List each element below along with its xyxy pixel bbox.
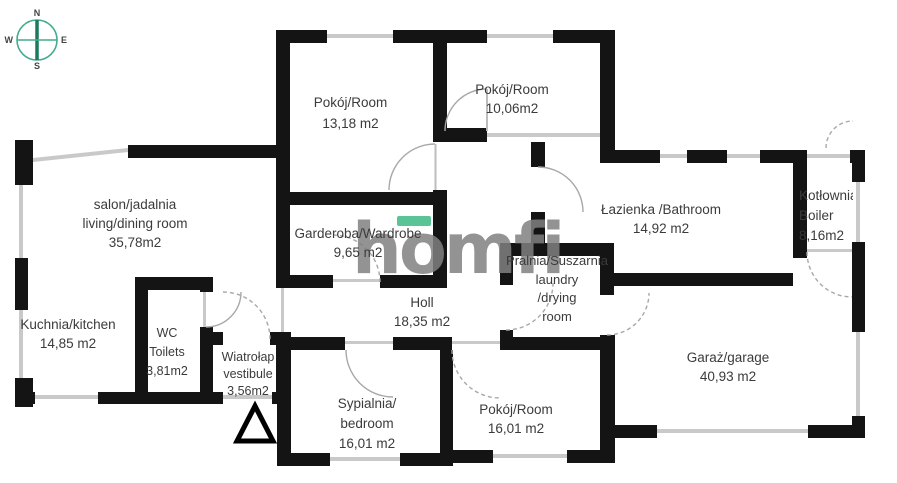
room-name: Łazienka /Bathroom (577, 200, 745, 219)
room-label-bedroom: Sypialnia/ bedroom 16,01 m2 (303, 394, 431, 454)
room-label-room-16: Pokój/Room 16,01 m2 (448, 400, 584, 438)
room-name: salon/jadalnia (55, 195, 215, 214)
room-label-room-10: Pokój/Room 10,06m2 (437, 80, 587, 118)
room-label-wardrobe: Garderoba/Wardrobe 9,65 m2 (283, 224, 433, 262)
door-arc-vestibule (223, 292, 270, 339)
room-name: Sypialnia/ (303, 394, 431, 414)
garage-door-line (657, 429, 808, 433)
room-area: 40,93 m2 (648, 367, 808, 386)
floor-plan: N E S W homfi salon/jadalnia living/dini… (0, 0, 897, 483)
window-salon-diagonal (33, 148, 128, 162)
door-arc-boiler (807, 252, 852, 297)
room-name: Pokój/Room (283, 92, 418, 113)
room-name-en: living/dining room (55, 214, 215, 233)
door-arc-wc (206, 292, 241, 327)
room-label-room-13: Pokój/Room 13,18 m2 (283, 92, 418, 134)
door-arc-pokoj16 (452, 350, 500, 398)
room-area: 13,18 m2 (283, 113, 418, 134)
room-label-garage: Garaż/garage 40,93 m2 (648, 348, 808, 386)
room-name-en: vestibule (202, 366, 294, 383)
room-name-en: bedroom (303, 414, 431, 434)
room-area: 8,16m2 (799, 226, 853, 246)
room-label-vestibule: Wiatrołap vestibule 3,56m2 (202, 349, 294, 400)
room-label-living-dining: salon/jadalnia living/dining room 35,78m… (55, 195, 215, 252)
room-area: 14,92 m2 (577, 219, 745, 238)
room-name: Pokój/Room (448, 400, 584, 419)
room-area: 3,81m2 (135, 362, 199, 381)
room-label-wc: WC Toilets 3,81m2 (135, 324, 199, 381)
entrance-marker (237, 406, 273, 441)
door-arc-sypialnia (346, 350, 393, 397)
room-label-boiler: Kotłownia Boiler 8,16m2 (799, 186, 853, 246)
compass-w-label: W (5, 35, 14, 45)
room-area: 3,56m2 (202, 383, 294, 400)
room-name: Wiatrołap (202, 349, 294, 366)
room-label-bathroom: Łazienka /Bathroom 14,92 m2 (577, 200, 745, 238)
room-name: Garaż/garage (648, 348, 808, 367)
room-label-kitchen: Kuchnia/kitchen 14,85 m2 (8, 315, 128, 353)
room-name: Holl (368, 293, 476, 312)
room-area: 10,06m2 (437, 99, 587, 118)
room-name: WC (135, 324, 199, 343)
room-name: Pralnia/Suszarnia (500, 252, 614, 271)
room-area: 18,35 m2 (368, 312, 476, 331)
room-label-hall: Holl 18,35 m2 (368, 293, 476, 331)
room-label-laundry: Pralnia/Suszarnia laundry /drying room (500, 252, 614, 326)
compass-n-label: N (34, 8, 41, 18)
compass-e-label: E (61, 35, 67, 45)
room-name: Kotłownia (799, 186, 853, 206)
room-name: Kuchnia/kitchen (8, 315, 128, 334)
compass-rose: N E S W (5, 8, 68, 71)
room-area: 16,01 m2 (303, 434, 431, 454)
room-name-en: Toilets (135, 343, 199, 362)
room-area: 9,65 m2 (283, 243, 433, 262)
door-arc-top-right (826, 121, 853, 148)
door-arc-pokoj13 (389, 144, 435, 190)
room-name: Pokój/Room (437, 80, 587, 99)
room-name: Garderoba/Wardrobe (283, 224, 433, 243)
room-name-en3: room (500, 308, 614, 327)
compass-s-label: S (34, 61, 40, 71)
room-area: 35,78m2 (55, 233, 215, 252)
room-name-en: laundry (500, 271, 614, 290)
room-name-en: Boiler (799, 206, 853, 226)
room-area: 14,85 m2 (8, 334, 128, 353)
room-name-en2: /drying (500, 289, 614, 308)
room-area: 16,01 m2 (448, 419, 584, 438)
